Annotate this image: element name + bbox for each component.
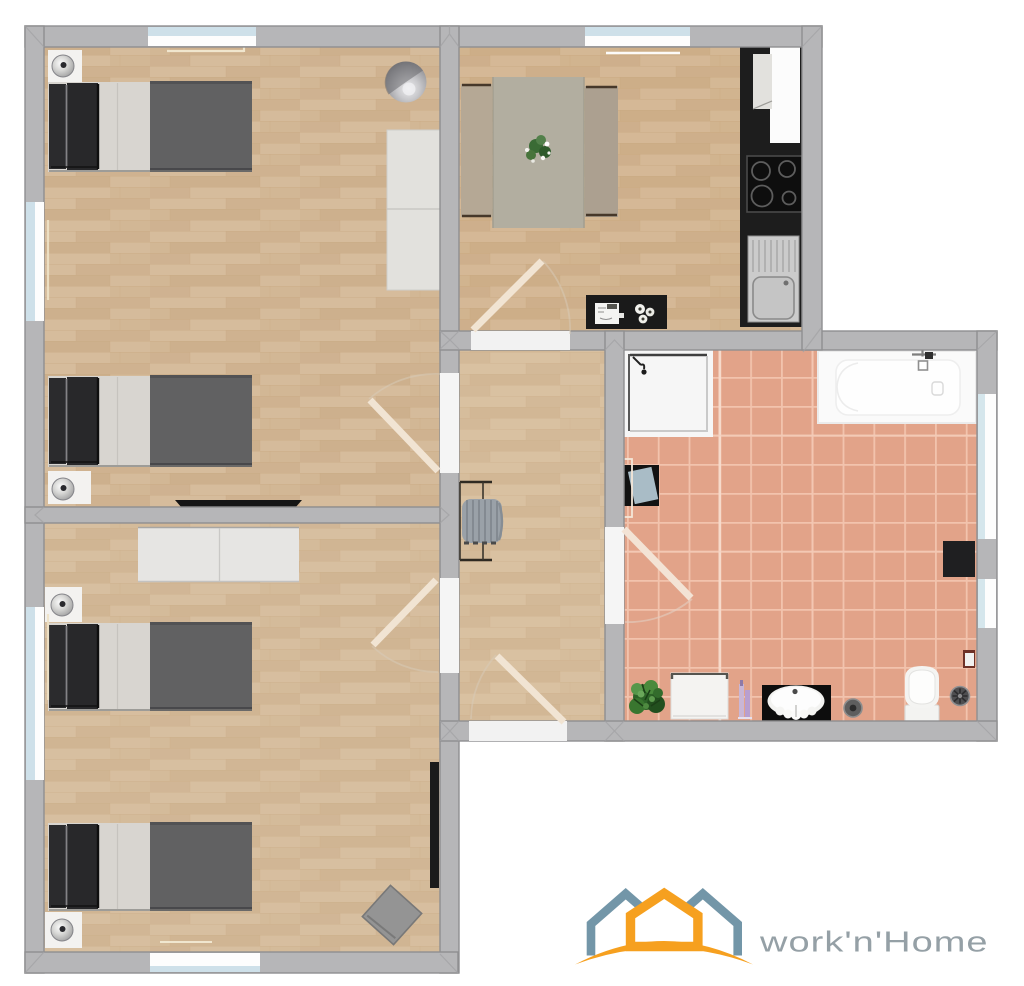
svg-text:work'n'Home: work'n'Home	[759, 926, 989, 959]
